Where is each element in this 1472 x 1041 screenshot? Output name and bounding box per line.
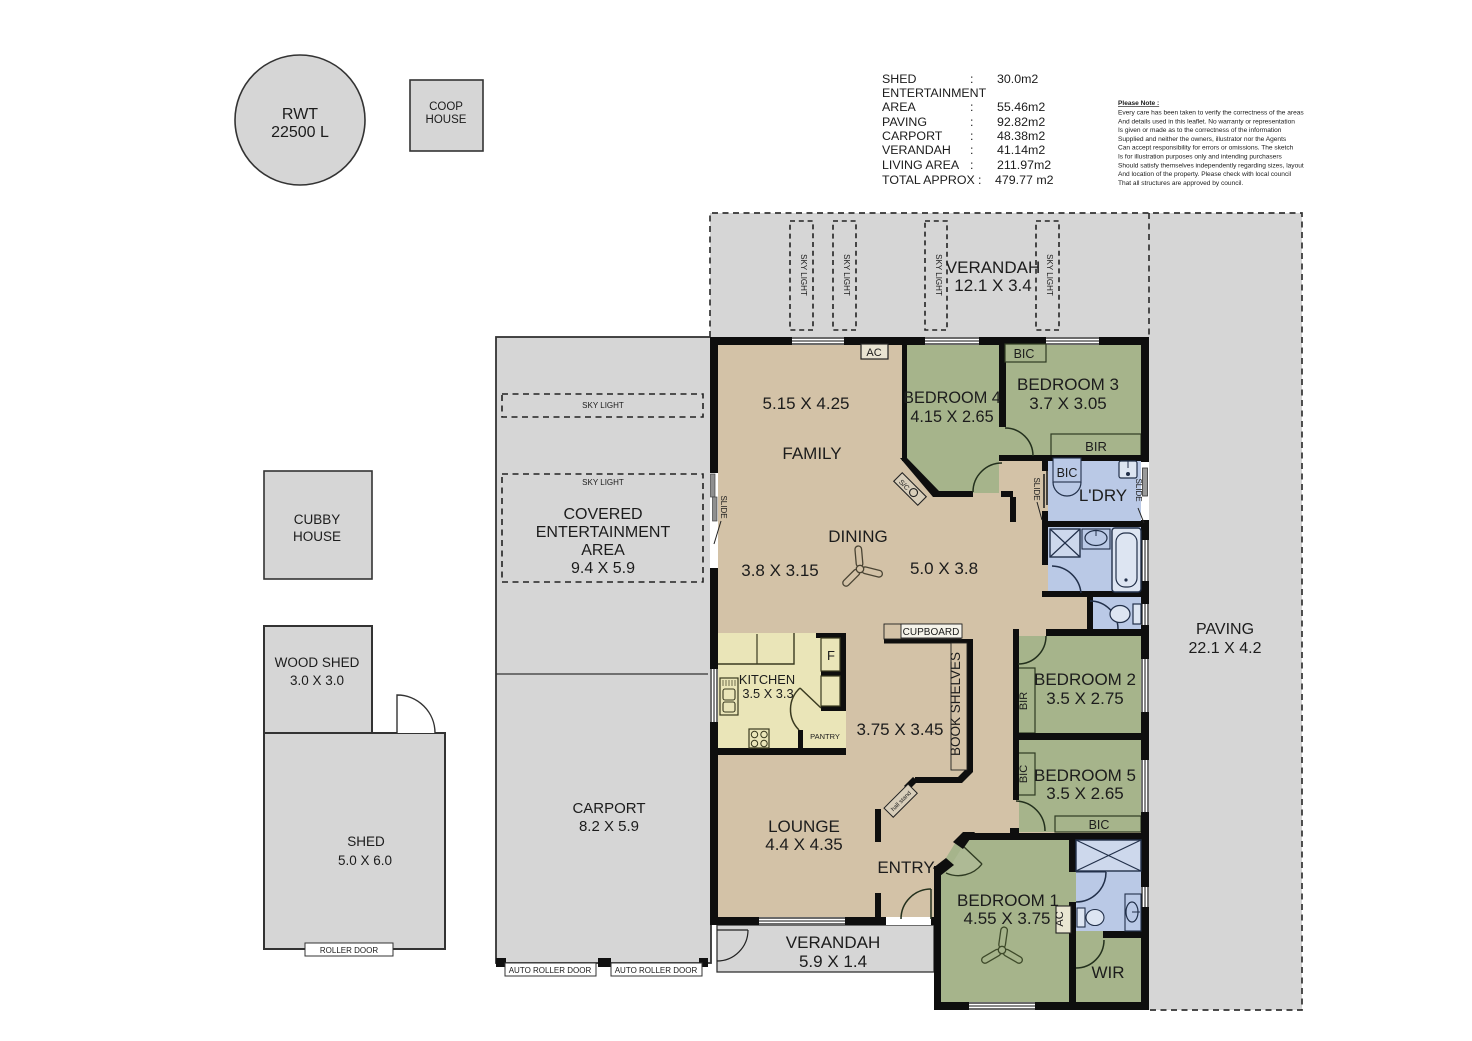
svg-text:Please Note :: Please Note : — [1118, 100, 1159, 107]
svg-text:BIC: BIC — [1057, 466, 1078, 480]
svg-text:CUBBY: CUBBY — [294, 512, 341, 527]
svg-text:SKY LIGHT: SKY LIGHT — [799, 254, 808, 296]
svg-text:BEDROOM 5: BEDROOM 5 — [1034, 766, 1136, 785]
svg-text:3.8 X 3.15: 3.8 X 3.15 — [741, 561, 819, 580]
svg-text:3.5 X 2.75: 3.5 X 2.75 — [1046, 689, 1124, 708]
svg-text:PAVING: PAVING — [1196, 621, 1254, 638]
svg-text:VERANDAH: VERANDAH — [882, 143, 951, 157]
svg-text:LOUNGE: LOUNGE — [768, 817, 840, 836]
svg-text:COVERED: COVERED — [563, 506, 642, 523]
svg-text:SKY LIGHT: SKY LIGHT — [1045, 254, 1054, 296]
svg-text:And location of the property.: And location of the property. Please che… — [1118, 171, 1292, 178]
svg-text:ROLLER DOOR: ROLLER DOOR — [320, 946, 378, 955]
svg-text:55.46m2: 55.46m2 — [997, 100, 1045, 114]
svg-text:SKY LIGHT: SKY LIGHT — [842, 254, 851, 296]
svg-text:SHED: SHED — [882, 72, 916, 86]
svg-text:VERANDAH: VERANDAH — [946, 258, 1040, 277]
svg-text:VERANDAH: VERANDAH — [786, 933, 880, 952]
svg-text:5.0 X 6.0: 5.0 X 6.0 — [338, 853, 392, 868]
svg-text::: : — [970, 158, 973, 172]
svg-text:SKY LIGHT: SKY LIGHT — [934, 254, 943, 296]
svg-text:HOUSE: HOUSE — [426, 114, 467, 126]
svg-text:BEDROOM 4: BEDROOM 4 — [903, 389, 1001, 407]
svg-text:3.0 X 3.0: 3.0 X 3.0 — [290, 673, 344, 688]
svg-text:AUTO ROLLER DOOR: AUTO ROLLER DOOR — [509, 966, 592, 975]
svg-text:Should satisfy themselves inde: Should satisfy themselves independently … — [1118, 162, 1304, 169]
svg-text:SKY LIGHT: SKY LIGHT — [582, 478, 624, 487]
svg-text::: : — [970, 143, 973, 157]
svg-text:8.2 X 5.9: 8.2 X 5.9 — [579, 818, 639, 835]
svg-text:211.97m2: 211.97m2 — [997, 158, 1051, 172]
svg-text:F: F — [827, 648, 835, 663]
svg-text:12.1 X 3.4: 12.1 X 3.4 — [954, 276, 1032, 295]
svg-text:3.5 X 3.3: 3.5 X 3.3 — [742, 686, 793, 701]
svg-text:SKY LIGHT: SKY LIGHT — [582, 401, 624, 410]
svg-text:ENTRY: ENTRY — [877, 858, 934, 877]
svg-text:BEDROOM 2: BEDROOM 2 — [1034, 670, 1136, 689]
svg-text:BIR: BIR — [1018, 692, 1030, 710]
svg-text:AREA: AREA — [882, 100, 916, 114]
svg-text:4.15 X 2.65: 4.15 X 2.65 — [910, 408, 993, 426]
svg-text:Is for illustration purposes o: Is for illustration purposes only and in… — [1118, 154, 1283, 161]
svg-text:22500 L: 22500 L — [271, 124, 329, 141]
svg-text:BIC: BIC — [1014, 347, 1035, 361]
svg-text:5.9 X 1.4: 5.9 X 1.4 — [799, 952, 867, 971]
svg-text:CARPORT: CARPORT — [882, 129, 943, 143]
svg-text:HOUSE: HOUSE — [293, 529, 341, 544]
svg-text::: : — [978, 173, 981, 187]
svg-text:22.1 X 4.2: 22.1 X 4.2 — [1189, 640, 1262, 657]
svg-text:Supplied and neither the owner: Supplied and neither the owners, illustr… — [1118, 136, 1287, 143]
svg-text:PANTRY: PANTRY — [810, 732, 840, 741]
svg-text::: : — [970, 72, 973, 86]
svg-text:9.4 X 5.9: 9.4 X 5.9 — [571, 560, 635, 577]
svg-text:AREA: AREA — [581, 542, 625, 559]
svg-text:Is given or made as to the cor: Is given or made as to the correctness o… — [1118, 127, 1282, 134]
svg-text:5.15 X 4.25: 5.15 X 4.25 — [763, 394, 850, 413]
svg-text:And details used in this leafl: And details used in this leaflet. No war… — [1118, 118, 1295, 125]
svg-text:CUPBOARD: CUPBOARD — [903, 627, 960, 638]
svg-text:4.4 X 4.35: 4.4 X 4.35 — [765, 835, 843, 854]
svg-text::: : — [970, 100, 973, 114]
svg-text:COOP: COOP — [429, 101, 463, 113]
svg-text:Can accept responsibility for: Can accept responsibility for errors or … — [1118, 145, 1294, 152]
svg-text:4.55 X 3.75: 4.55 X 3.75 — [964, 909, 1051, 928]
svg-text:ENTERTAINMENT: ENTERTAINMENT — [882, 86, 987, 100]
svg-text:3.5 X 2.65: 3.5 X 2.65 — [1046, 784, 1124, 803]
svg-text::: : — [970, 129, 973, 143]
svg-text:3.75 X 3.45: 3.75 X 3.45 — [857, 720, 944, 739]
svg-text:BOOK SHELVES: BOOK SHELVES — [948, 652, 963, 756]
svg-text:92.82m2: 92.82m2 — [997, 115, 1045, 129]
svg-text::: : — [970, 115, 973, 129]
svg-text:3.7 X 3.05: 3.7 X 3.05 — [1029, 394, 1107, 413]
svg-text:FAMILY: FAMILY — [782, 444, 841, 463]
svg-text:BIC: BIC — [1018, 765, 1030, 783]
svg-text:LIVING AREA: LIVING AREA — [882, 158, 960, 172]
svg-text:30.0m2: 30.0m2 — [997, 72, 1038, 86]
svg-text:SLIDE: SLIDE — [1134, 478, 1143, 501]
svg-text:KITCHEN: KITCHEN — [739, 672, 795, 687]
svg-text:BEDROOM 1: BEDROOM 1 — [957, 891, 1059, 910]
svg-text:Every care has been taken to v: Every care has been taken to verify the … — [1118, 110, 1304, 117]
svg-text:AC: AC — [866, 347, 881, 359]
svg-text:TOTAL APPROX: TOTAL APPROX — [882, 173, 975, 187]
svg-text:PAVING: PAVING — [882, 115, 927, 129]
svg-text:AUTO ROLLER DOOR: AUTO ROLLER DOOR — [615, 966, 698, 975]
svg-text:That all structures are approv: That all structures are approved by coun… — [1118, 180, 1243, 187]
svg-text:BIC: BIC — [1089, 818, 1110, 832]
svg-text:41.14m2: 41.14m2 — [997, 143, 1045, 157]
svg-text:WIR: WIR — [1091, 963, 1124, 982]
svg-text:SLIDE: SLIDE — [1032, 477, 1041, 500]
svg-text:DINING: DINING — [828, 527, 888, 546]
svg-text:48.38m2: 48.38m2 — [997, 129, 1045, 143]
svg-text:5.0 X 3.8: 5.0 X 3.8 — [910, 559, 978, 578]
svg-text:ENTERTAINMENT: ENTERTAINMENT — [536, 524, 671, 541]
svg-text:479.77 m2: 479.77 m2 — [995, 173, 1054, 187]
svg-text:BEDROOM 3: BEDROOM 3 — [1017, 375, 1119, 394]
svg-text:WOOD SHED: WOOD SHED — [275, 655, 360, 670]
svg-text:SLIDE: SLIDE — [719, 495, 728, 518]
svg-text:L'DRY: L'DRY — [1079, 486, 1127, 505]
svg-text:RWT: RWT — [282, 106, 318, 123]
svg-text:AC: AC — [1054, 911, 1066, 926]
svg-text:SHED: SHED — [347, 834, 385, 849]
svg-text:BIR: BIR — [1085, 439, 1107, 454]
svg-text:CARPORT: CARPORT — [572, 800, 645, 817]
